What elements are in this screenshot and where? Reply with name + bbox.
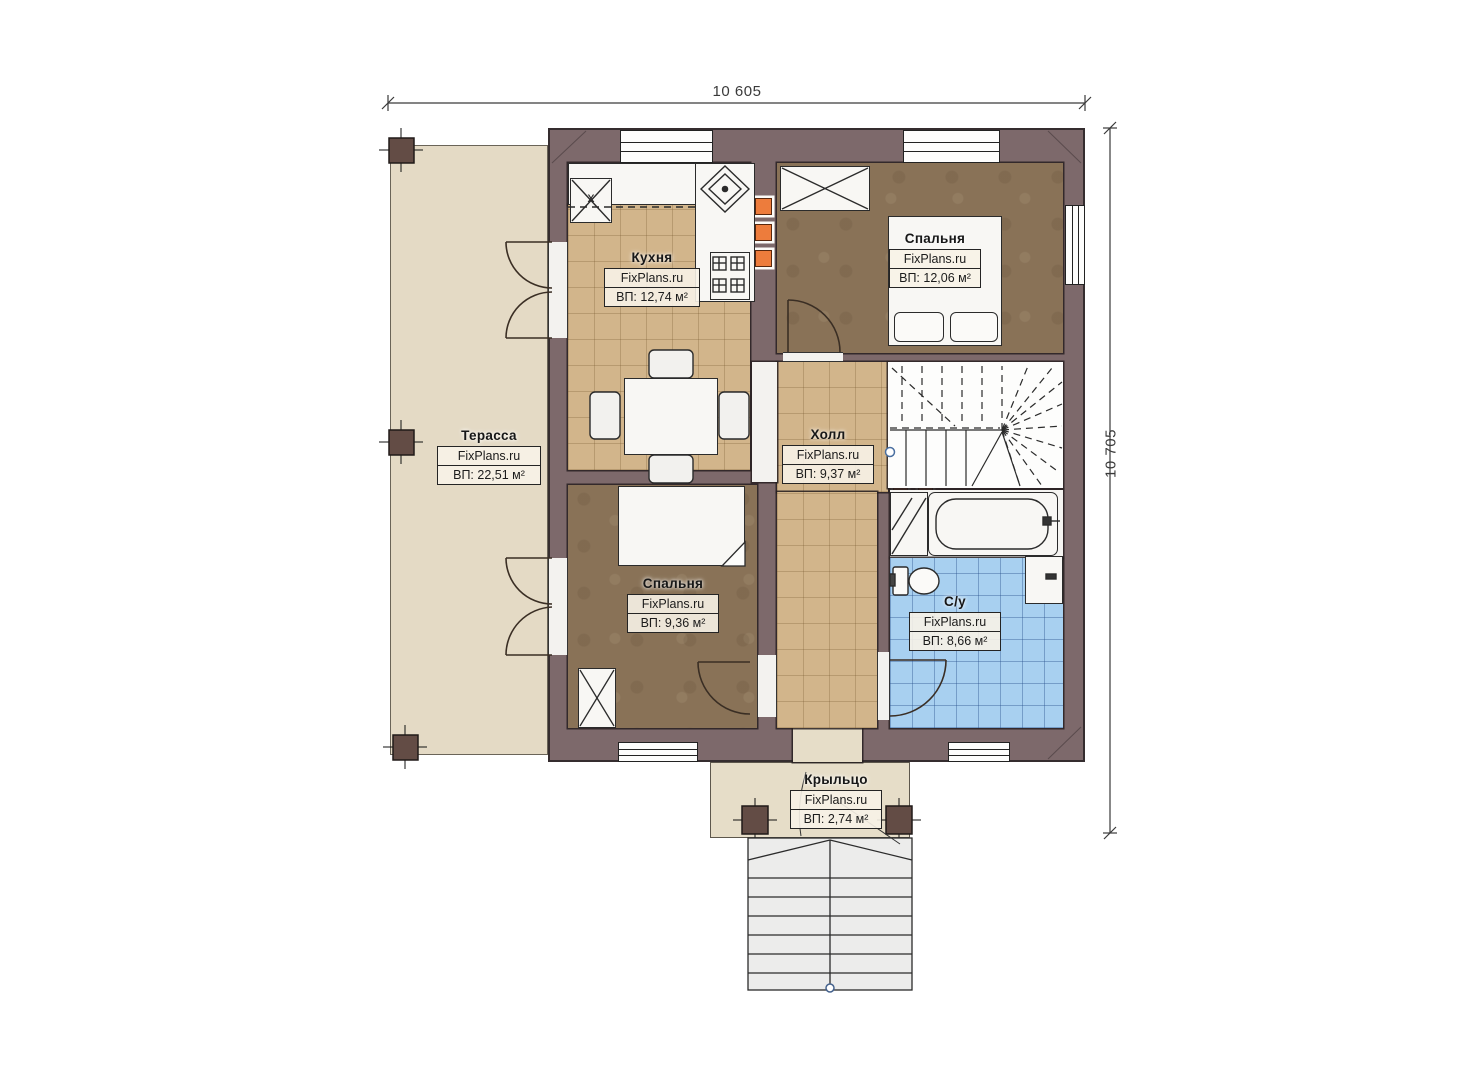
fixplans-watermark: FixPlans.ru (910, 613, 1000, 631)
fixplans-watermark: FixPlans.ru (791, 791, 881, 809)
label-boxes-hall: FixPlans.ru ВП: 9,37 м² (782, 445, 874, 484)
vent-block-2 (755, 224, 772, 241)
room-name-bathroom: С/у (909, 594, 1001, 609)
room-label-porch: Крыльцо FixPlans.ru ВП: 2,74 м² (790, 772, 882, 829)
entrance-threshold (793, 728, 862, 762)
room-label-terrace: Терасса FixPlans.ru ВП: 22,51 м² (437, 428, 541, 485)
label-boxes-bathroom: FixPlans.ru ВП: 8,66 м² (909, 612, 1001, 651)
room-label-hall: Холл FixPlans.ru ВП: 9,37 м² (782, 427, 874, 484)
label-boxes-bedroom-top: FixPlans.ru ВП: 12,06 м² (889, 249, 981, 288)
french-door-opening-kitchen (548, 242, 568, 338)
window-bathroom-bottom (948, 742, 1010, 762)
window-bedroom-right (1065, 205, 1085, 285)
room-area-bathroom: ВП: 8,66 м² (910, 631, 1000, 650)
dimension-height-label: 10 705 (1103, 409, 1120, 499)
bed-bottom (618, 486, 745, 566)
fixplans-watermark: FixPlans.ru (890, 250, 980, 268)
room-area-kitchen: ВП: 12,74 м² (605, 287, 699, 306)
stove (710, 252, 750, 300)
bathtub (928, 492, 1058, 556)
staircase-floor (888, 362, 1063, 488)
floor-plan: x (0, 0, 1473, 1080)
pillow-left (894, 312, 944, 342)
room-area-hall: ВП: 9,37 м² (783, 464, 873, 483)
door-opening-bathroom (877, 652, 890, 720)
exterior-stairs (748, 838, 912, 992)
appliance-x-marker: x (571, 189, 611, 205)
room-label-bedroom-top: Спальня FixPlans.ru ВП: 12,06 м² (889, 231, 981, 288)
window-bedroom-top (903, 130, 1000, 163)
room-name-porch: Крыльцо (790, 772, 882, 787)
room-name-hall: Холл (782, 427, 874, 442)
room-area-bedroom-top: ВП: 12,06 м² (890, 268, 980, 287)
label-boxes-kitchen: FixPlans.ru ВП: 12,74 м² (604, 268, 700, 307)
dining-table (624, 378, 718, 455)
door-opening-bedroom-top (783, 352, 843, 362)
fixplans-watermark: FixPlans.ru (605, 269, 699, 287)
pillow-right (950, 312, 998, 342)
room-label-bedroom-bottom: Спальня FixPlans.ru ВП: 9,36 м² (627, 576, 719, 633)
label-boxes-bedroom-bottom: FixPlans.ru ВП: 9,36 м² (627, 594, 719, 633)
room-label-kitchen: Кухня FixPlans.ru ВП: 12,74 м² (604, 250, 700, 307)
kitchen-appliance-box: x (570, 178, 612, 223)
window-bedroom-bottom (618, 742, 698, 762)
kitchen-hall-passage (752, 362, 777, 482)
room-area-porch: ВП: 2,74 м² (791, 809, 881, 828)
washbasin (1025, 556, 1063, 604)
room-label-bathroom: С/у FixPlans.ru ВП: 8,66 м² (909, 594, 1001, 651)
room-name-bedroom-top: Спальня (889, 231, 981, 246)
vent-block-3 (755, 250, 772, 267)
window-kitchen-top (620, 130, 713, 163)
shelf-hatch-box (890, 492, 928, 556)
label-boxes-terrace: FixPlans.ru ВП: 22,51 м² (437, 446, 541, 485)
label-boxes-porch: FixPlans.ru ВП: 2,74 м² (790, 790, 882, 829)
vent-shaft-box (578, 668, 616, 728)
wardrobe (780, 166, 870, 211)
door-opening-bedroom-bottom (757, 655, 777, 717)
hall-corridor-floor (777, 492, 877, 728)
french-door-opening-bedroom (548, 558, 568, 655)
room-name-terrace: Терасса (437, 428, 541, 443)
room-name-bedroom-bottom: Спальня (627, 576, 719, 591)
room-name-kitchen: Кухня (604, 250, 700, 265)
fixplans-watermark: FixPlans.ru (628, 595, 718, 613)
room-area-bedroom-bottom: ВП: 9,36 м² (628, 613, 718, 632)
vent-block-1 (755, 198, 772, 215)
dimension-width-label: 10 605 (687, 83, 787, 100)
fixplans-watermark: FixPlans.ru (783, 446, 873, 464)
fixplans-watermark: FixPlans.ru (438, 447, 540, 465)
room-area-terrace: ВП: 22,51 м² (438, 465, 540, 484)
